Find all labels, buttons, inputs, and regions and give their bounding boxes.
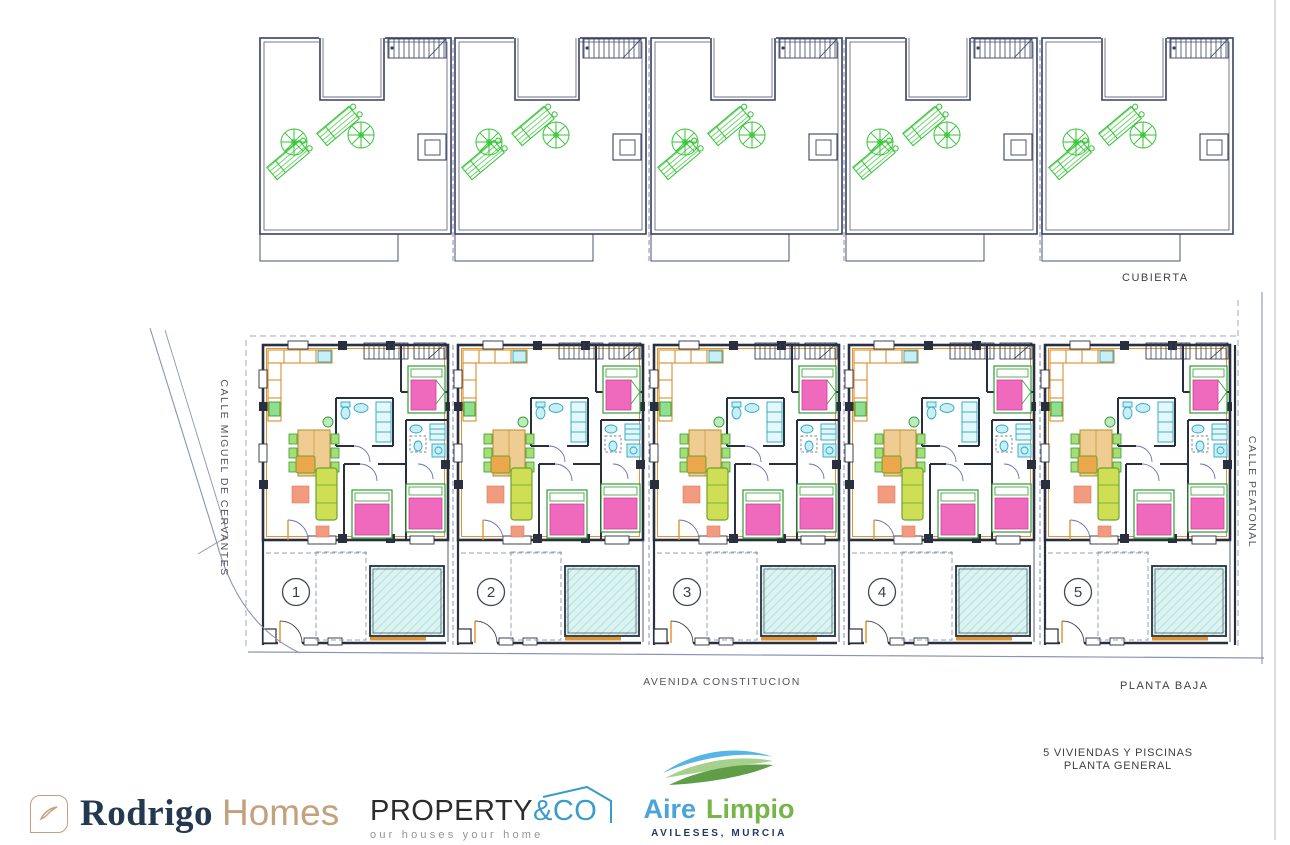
rodrigo-homes-logo: RodrigoHomes (30, 792, 339, 835)
property-name-accent: &CO (533, 797, 611, 826)
property-co-logo: PROPERTY&CO our houses your home (370, 797, 611, 841)
roof-plan-unit-4 (846, 35, 1037, 261)
ground-plan-row: 1 2 3 4 5 (250, 336, 1238, 645)
ground-plan-unit-4 (845, 341, 1036, 645)
roof-section-label: CUBIERTA (1122, 272, 1189, 284)
unit-number-4: 4 (878, 584, 886, 601)
ground-plan-unit-2 (454, 341, 645, 645)
wave-swoosh-icon (659, 743, 779, 793)
roof-plan-unit-2 (455, 35, 646, 261)
roof-plan-unit-5 (1042, 35, 1233, 261)
aire-name-primary: Aire (643, 794, 696, 824)
title-block: 5 VIVIENDAS Y PISCINAS PLANTA GENERAL (1043, 747, 1193, 772)
aire-name-secondary: Limpio (706, 794, 795, 824)
leaf-icon (30, 795, 68, 833)
ground-section-label: PLANTA BAJA (1120, 680, 1208, 692)
unit-number-3: 3 (683, 584, 691, 601)
ground-plan-unit-5 (1041, 341, 1232, 645)
property-tagline: our houses your home (370, 829, 611, 841)
property-name-primary: PROPERTY (370, 797, 533, 826)
rodrigo-name-secondary: Homes (222, 792, 339, 833)
roof-plan-unit-3 (651, 35, 842, 261)
street-label-right: CALLE PEATONAL (1246, 436, 1258, 548)
rodrigo-name-primary: Rodrigo (80, 793, 213, 834)
property-wordmark: PROPERTY&CO (370, 797, 611, 826)
ground-plan-unit-3 (650, 341, 841, 645)
rodrigo-wordmark: RodrigoHomes (80, 792, 339, 835)
aire-wordmark: AireLimpio (643, 795, 794, 825)
street-label-bottom: AVENIDA CONSTITUCION (643, 676, 801, 688)
plan-canvas: 1 2 3 4 5 CUBIERTA PLANTA BAJA AVENIDA C… (0, 0, 1290, 840)
house-outline-icon (541, 785, 613, 825)
site-plan-drawing: 1 2 3 4 5 CUBIERTA PLANTA BAJA AVENIDA C… (0, 0, 1290, 840)
unit-number-1: 1 (292, 584, 300, 601)
ground-plan-unit-1 (259, 341, 450, 645)
street-label-left: CALLE MIGUEL DE CERVANTES (218, 379, 230, 576)
unit-number-2: 2 (487, 584, 495, 601)
roof-plan-unit-1 (260, 35, 451, 261)
aire-location: AVILESES, MURCIA (651, 828, 787, 839)
title-line-2: PLANTA GENERAL (1064, 760, 1172, 772)
title-line-1: 5 VIVIENDAS Y PISCINAS (1043, 747, 1193, 759)
roof-plan-row (260, 35, 1233, 262)
architectural-plan-sheet: { "drawing": { "roof_section_label": "CU… (0, 0, 1290, 840)
unit-number-5: 5 (1074, 584, 1082, 601)
aire-limpio-logo: AireLimpio AVILESES, MURCIA (634, 743, 804, 839)
